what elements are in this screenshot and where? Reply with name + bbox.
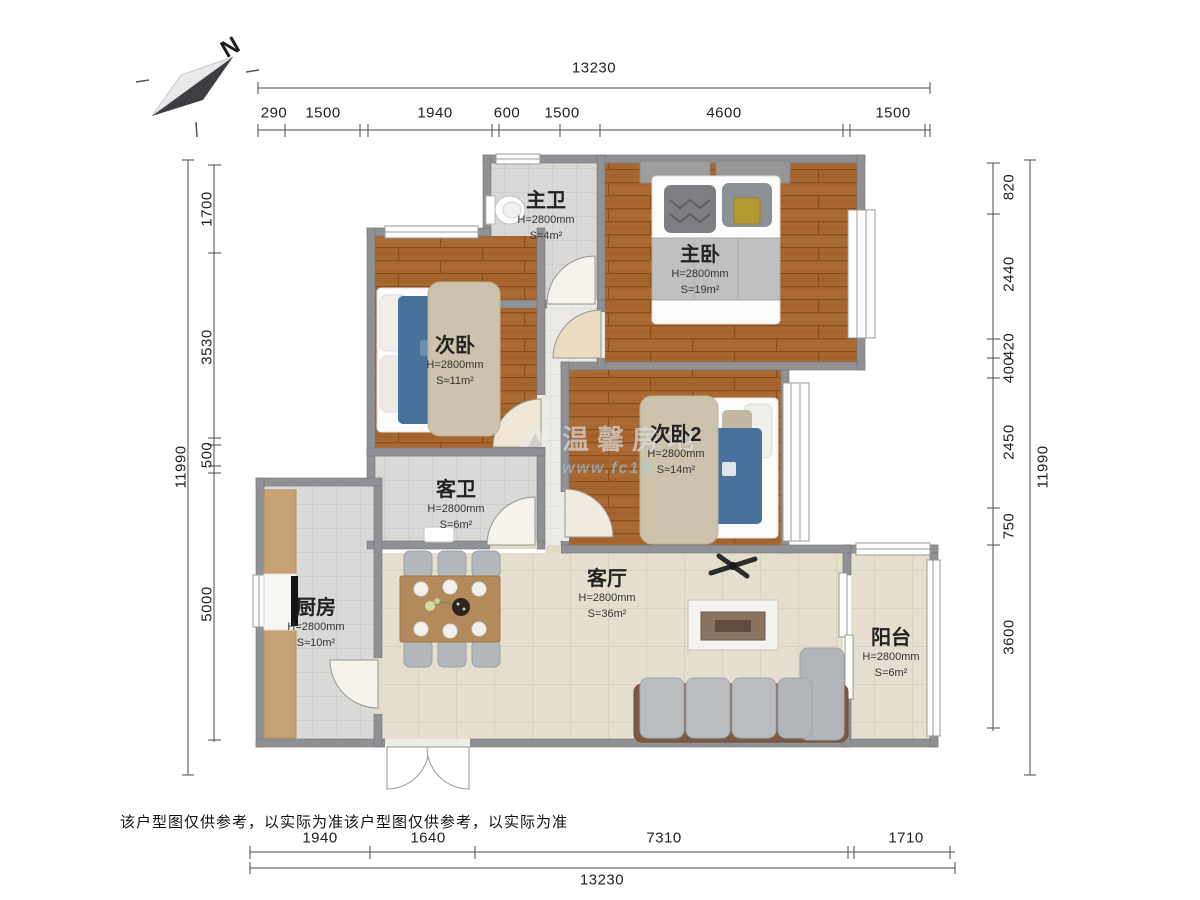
room-label-masterbed: 主卧 H=2800mm S=19m² bbox=[671, 244, 728, 299]
dim-top-seg: 1500 bbox=[544, 105, 579, 122]
dim-right-seg: 820 bbox=[1001, 174, 1018, 201]
room-height: H=2800mm bbox=[427, 502, 484, 518]
room-area: S≈10m² bbox=[287, 636, 344, 652]
room-name: 厨房 bbox=[287, 597, 344, 620]
furniture-dining bbox=[400, 551, 500, 667]
disclaimer-text: 该户型图仅供参考，以实际为准该户型图仅供参考，以实际为准 bbox=[120, 811, 568, 832]
compass-icon bbox=[136, 57, 259, 137]
watermark-logo-icon bbox=[518, 418, 552, 450]
dim-top-total: 13230 bbox=[572, 60, 616, 77]
dim-right-seg: 400 bbox=[1001, 357, 1018, 384]
room-label-bed3: 次卧2 H=2800mm S≈14m² bbox=[647, 424, 704, 479]
dim-right-seg: 2440 bbox=[1001, 256, 1018, 291]
room-area: S=19m² bbox=[671, 283, 728, 299]
dim-right-seg: 2450 bbox=[1001, 424, 1018, 459]
floorplan-page: N 温馨房地 www.fc10 主卫 H=2800mm S=4m² 主卧 H=2… bbox=[0, 0, 1200, 900]
dim-top-seg: 290 bbox=[261, 105, 288, 122]
room-label-bed2: 次卧 H=2800mm S≈11m² bbox=[426, 335, 483, 390]
room-height: H=2800mm bbox=[647, 447, 704, 463]
dim-bottom-seg: 1710 bbox=[888, 830, 923, 847]
dim-left-seg: 3530 bbox=[199, 329, 216, 364]
room-height: H=2800mm bbox=[426, 358, 483, 374]
room-label-balcony: 阳台 H=2800mm S=6m² bbox=[862, 627, 919, 682]
dim-right-seg: 750 bbox=[1001, 513, 1018, 540]
room-area: S≈14m² bbox=[647, 463, 704, 479]
furniture-master-bedroom bbox=[640, 161, 790, 324]
room-area: S=36m² bbox=[578, 607, 635, 623]
room-area: S=6m² bbox=[427, 518, 484, 534]
dim-left-seg: 5000 bbox=[199, 586, 216, 621]
dim-right-seg: 420 bbox=[1001, 333, 1018, 360]
room-name: 阳台 bbox=[862, 627, 919, 650]
room-height: H=2800mm bbox=[517, 213, 574, 229]
dim-top-seg: 1500 bbox=[305, 105, 340, 122]
dim-top-seg: 1940 bbox=[417, 105, 452, 122]
balcony-slider-panel bbox=[839, 573, 847, 637]
room-area: S=6m² bbox=[862, 666, 919, 682]
dim-top-seg: 600 bbox=[494, 105, 521, 122]
entrance-door-left bbox=[387, 747, 429, 789]
room-area: S=4m² bbox=[517, 229, 574, 245]
dim-left-seg: 1700 bbox=[199, 191, 216, 226]
room-height: H=2800mm bbox=[671, 267, 728, 283]
dim-bottom-seg: 7310 bbox=[646, 830, 681, 847]
room-label-living: 客厅 H=2800mm S=36m² bbox=[578, 568, 635, 623]
room-name: 次卧 bbox=[426, 335, 483, 358]
entrance-door-right bbox=[427, 747, 469, 789]
room-name: 次卧2 bbox=[647, 424, 704, 447]
dim-right-seg: 3600 bbox=[1001, 619, 1018, 654]
dim-right-total: 11990 bbox=[1035, 445, 1052, 488]
dim-top-seg: 4600 bbox=[706, 105, 741, 122]
room-name: 客厅 bbox=[578, 568, 635, 591]
dim-left-total: 11990 bbox=[173, 445, 190, 488]
room-height: H=2800mm bbox=[287, 620, 344, 636]
furniture-tv-unit bbox=[688, 600, 778, 650]
room-area: S≈11m² bbox=[426, 374, 483, 390]
room-name: 客卫 bbox=[427, 479, 484, 502]
dim-bottom-seg: 1640 bbox=[410, 830, 445, 847]
room-name: 主卫 bbox=[517, 190, 574, 213]
dim-bottom-seg: 1940 bbox=[302, 830, 337, 847]
room-label-masterbath: 主卫 H=2800mm S=4m² bbox=[517, 190, 574, 245]
dim-top-seg: 1500 bbox=[875, 105, 910, 122]
room-label-guestbath: 客卫 H=2800mm S=6m² bbox=[427, 479, 484, 534]
dim-left-seg: 500 bbox=[199, 442, 216, 469]
room-name: 主卧 bbox=[671, 244, 728, 267]
room-height: H=2800mm bbox=[578, 591, 635, 607]
dim-bottom-total: 13230 bbox=[580, 872, 624, 889]
room-label-kitchen: 厨房 H=2800mm S≈10m² bbox=[287, 597, 344, 652]
room-height: H=2800mm bbox=[862, 650, 919, 666]
